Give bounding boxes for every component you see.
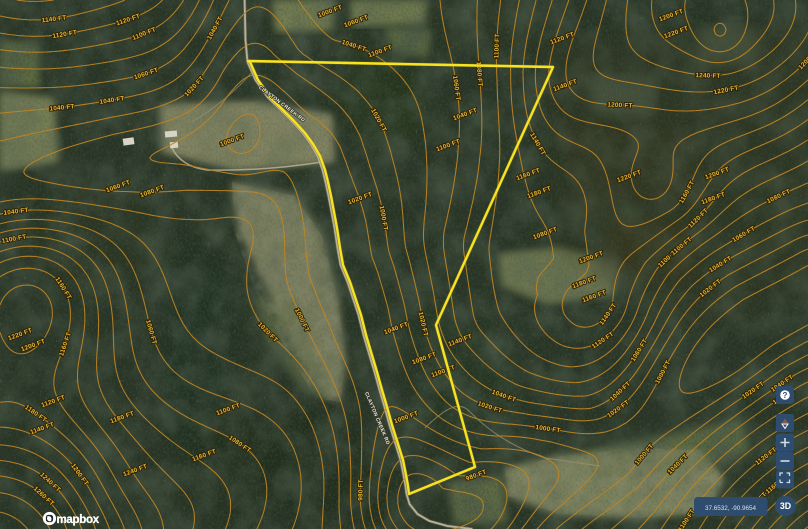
svg-text:?: ? (783, 391, 788, 400)
svg-text:980 FT: 980 FT (357, 479, 364, 501)
svg-text:mapbox: mapbox (57, 514, 100, 526)
svg-text:1240 FT: 1240 FT (695, 72, 720, 80)
svg-text:37.6532, -90.9654: 37.6532, -90.9654 (705, 505, 757, 512)
svg-text:1100 FT: 1100 FT (493, 33, 501, 58)
svg-text:1200 FT: 1200 FT (607, 101, 633, 109)
svg-text:3D: 3D (780, 501, 791, 511)
